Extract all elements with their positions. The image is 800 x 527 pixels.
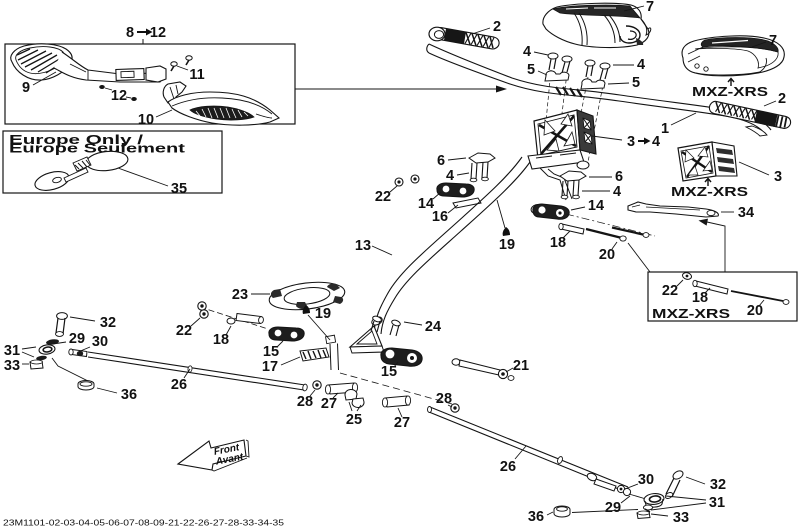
svg-text:7: 7 xyxy=(769,33,777,49)
svg-text:19: 19 xyxy=(315,306,331,322)
svg-text:11: 11 xyxy=(189,67,204,83)
svg-text:32: 32 xyxy=(710,477,726,493)
svg-text:33: 33 xyxy=(673,510,689,526)
svg-text:21: 21 xyxy=(513,358,529,374)
svg-text:4: 4 xyxy=(446,168,454,184)
svg-text:17: 17 xyxy=(262,359,278,375)
svg-text:12: 12 xyxy=(111,88,127,104)
svg-text:8: 8 xyxy=(126,25,134,41)
svg-text:MXZ-XRS: MXZ-XRS xyxy=(671,184,748,199)
svg-text:19: 19 xyxy=(499,237,515,253)
svg-text:22: 22 xyxy=(375,189,391,205)
svg-text:29: 29 xyxy=(69,331,85,347)
svg-text:3: 3 xyxy=(627,134,635,150)
svg-text:23: 23 xyxy=(232,287,248,303)
svg-text:35: 35 xyxy=(171,181,187,197)
svg-text:30: 30 xyxy=(638,472,654,488)
svg-text:4: 4 xyxy=(652,134,660,150)
svg-text:28: 28 xyxy=(297,394,313,410)
svg-text:5: 5 xyxy=(632,75,640,91)
svg-text:3: 3 xyxy=(774,169,782,185)
svg-text:MXZ-XRS: MXZ-XRS xyxy=(652,306,730,321)
svg-text:27: 27 xyxy=(321,396,337,412)
svg-text:15: 15 xyxy=(263,344,279,360)
svg-text:5: 5 xyxy=(527,62,535,78)
svg-text:33: 33 xyxy=(4,358,20,374)
svg-text:20: 20 xyxy=(747,303,763,319)
svg-text:22: 22 xyxy=(662,283,678,299)
svg-text:27: 27 xyxy=(394,415,410,431)
svg-text:28: 28 xyxy=(436,391,452,407)
svg-text:7: 7 xyxy=(646,0,654,15)
svg-text:9: 9 xyxy=(22,80,30,96)
svg-text:6: 6 xyxy=(615,169,623,185)
svg-text:16: 16 xyxy=(432,209,448,225)
svg-text:2: 2 xyxy=(493,19,501,35)
svg-text:13: 13 xyxy=(355,238,371,254)
svg-text:36: 36 xyxy=(528,509,544,525)
svg-text:14: 14 xyxy=(588,198,604,214)
svg-text:29: 29 xyxy=(605,500,621,516)
svg-text:32: 32 xyxy=(100,315,116,331)
svg-text:36: 36 xyxy=(121,387,137,403)
svg-text:12: 12 xyxy=(150,25,166,41)
svg-text:31: 31 xyxy=(709,495,725,511)
svg-text:23M1101-02-03-04-05-06-07-08-0: 23M1101-02-03-04-05-06-07-08-09-21-22-26… xyxy=(3,518,284,527)
svg-text:10: 10 xyxy=(138,112,154,128)
svg-text:6: 6 xyxy=(437,153,445,169)
svg-text:26: 26 xyxy=(500,459,516,475)
svg-text:4: 4 xyxy=(613,184,621,200)
svg-text:24: 24 xyxy=(425,319,441,335)
svg-text:4: 4 xyxy=(637,57,645,73)
svg-text:34: 34 xyxy=(738,205,754,221)
svg-text:2: 2 xyxy=(778,91,786,107)
svg-text:4: 4 xyxy=(523,44,531,60)
svg-text:22: 22 xyxy=(176,323,192,339)
svg-text:MXZ-XRS: MXZ-XRS xyxy=(692,84,768,99)
svg-text:20: 20 xyxy=(599,247,615,263)
svg-text:25: 25 xyxy=(346,412,362,428)
svg-text:1: 1 xyxy=(661,121,669,137)
svg-text:26: 26 xyxy=(171,377,187,393)
svg-text:31: 31 xyxy=(4,343,20,359)
svg-text:30: 30 xyxy=(92,334,108,350)
